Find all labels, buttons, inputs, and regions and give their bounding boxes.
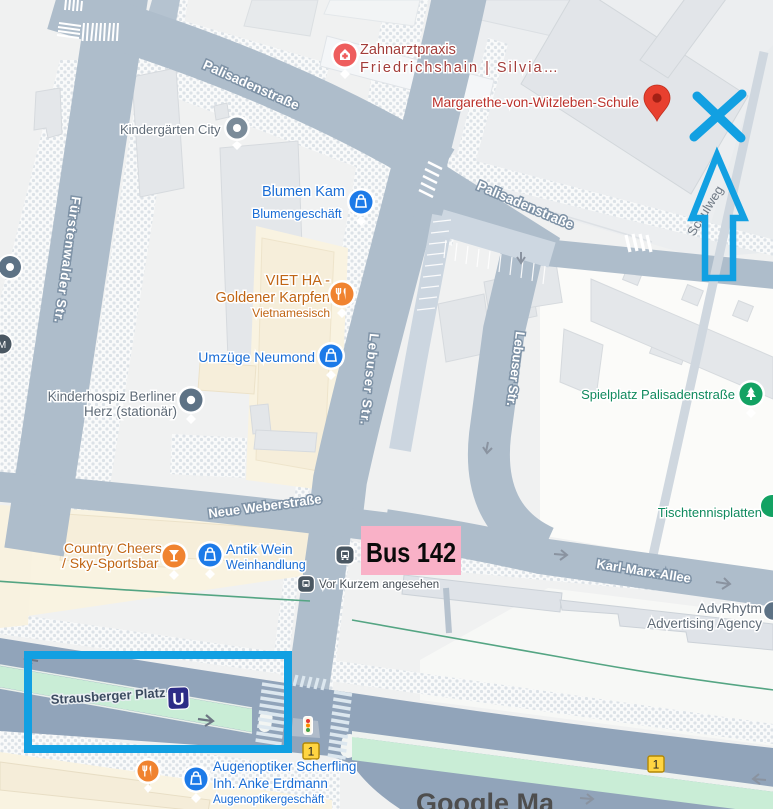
svg-text:U: U: [172, 689, 185, 708]
svg-text:Goldener Karpfen: Goldener Karpfen: [216, 290, 330, 306]
svg-text:Blumen Kam: Blumen Kam: [262, 184, 345, 200]
svg-text:Inh. Anke Erdmann: Inh. Anke Erdmann: [213, 776, 328, 791]
svg-text:Kinderhospiz Berliner: Kinderhospiz Berliner: [48, 389, 177, 404]
svg-text:Weinhandlung: Weinhandlung: [226, 558, 306, 572]
svg-text:Kindergärten City: Kindergärten City: [120, 122, 221, 137]
svg-text:Margarethe-von-Witzleben-Schul: Margarethe-von-Witzleben-Schule: [432, 94, 639, 110]
svg-text:Antik Wein: Antik Wein: [226, 541, 293, 557]
svg-text:M: M: [0, 340, 6, 351]
svg-text:Umzüge Neumond: Umzüge Neumond: [198, 349, 315, 365]
svg-text:/ Sky-Sportsbar: / Sky-Sportsbar: [62, 555, 159, 571]
svg-text:1: 1: [308, 745, 315, 759]
svg-text:VIET HA -: VIET HA -: [266, 273, 330, 289]
svg-text:Vietnamesisch: Vietnamesisch: [252, 306, 330, 320]
svg-text:Tischtennisplatten: Tischtennisplatten: [658, 505, 762, 520]
svg-text:Country Cheers: Country Cheers: [64, 540, 162, 556]
svg-text:Advertising Agency: Advertising Agency: [647, 616, 762, 631]
svg-text:Blumengeschäft: Blumengeschäft: [252, 207, 342, 221]
svg-text:Vor Kurzem angesehen: Vor Kurzem angesehen: [319, 579, 439, 591]
svg-text:Zahnarztpraxis: Zahnarztpraxis: [360, 42, 456, 58]
svg-text:1: 1: [653, 758, 660, 772]
svg-text:Augenoptikergeschäft: Augenoptikergeschäft: [213, 794, 325, 806]
svg-text:AdvRhytm: AdvRhytm: [697, 600, 762, 616]
svg-text:Augenoptiker Scherfling: Augenoptiker Scherfling: [213, 759, 356, 774]
svg-text:Spielplatz Palisadenstraße: Spielplatz Palisadenstraße: [581, 387, 735, 402]
svg-text:Bus 142: Bus 142: [366, 537, 456, 568]
svg-text:Google Ma: Google Ma: [416, 788, 555, 809]
svg-text:Friedrichshain | Silvia…: Friedrichshain | Silvia…: [360, 60, 560, 76]
svg-text:Herz (stationär): Herz (stationär): [84, 404, 177, 419]
